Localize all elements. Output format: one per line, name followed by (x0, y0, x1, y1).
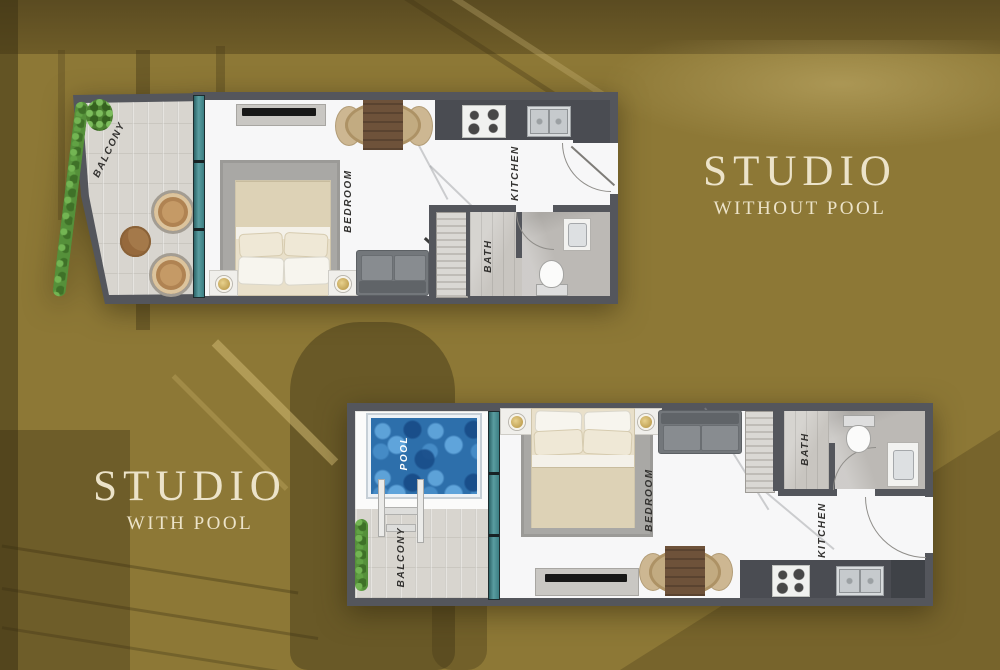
plan-title-line2: WITH POOL (65, 513, 315, 535)
balcony-chair-1 (151, 190, 195, 234)
bed-pillow (284, 256, 331, 286)
sofa-cushion (663, 425, 701, 451)
bed-pillow (582, 429, 632, 457)
kitchen-corner-counter (573, 100, 610, 143)
pool-label: POOL (399, 413, 411, 493)
nightstand-lamp (216, 276, 232, 292)
bed-sheet (532, 455, 634, 467)
vanity-basin (893, 450, 914, 480)
floorplan-studio-with-pool: POOL BALCONY (347, 403, 933, 606)
pool-ladder-rail (417, 479, 424, 543)
floorplan-studio-without-pool: BALCONY (72, 92, 618, 304)
background-sky-light (600, 40, 1000, 150)
balcony-table (120, 226, 151, 257)
nightstand-lamp (638, 414, 654, 430)
sofa-cushion (701, 425, 739, 451)
bed-blanket (236, 181, 330, 230)
balcony-chair-2 (149, 253, 193, 297)
bed-pillow (533, 429, 583, 457)
entry-opening (610, 143, 618, 194)
sink-basin (530, 109, 549, 134)
sofa-back (359, 281, 426, 293)
toilet (539, 260, 564, 288)
sofa-back (661, 413, 739, 424)
kitchen-sink (836, 566, 884, 596)
kitchen-sink (527, 106, 571, 137)
bath-label: BATH (800, 409, 812, 489)
glass-door-frame (489, 472, 499, 475)
bath-wall (553, 205, 610, 212)
kitchen-label: KITCHEN (510, 133, 522, 213)
plan-title-without-pool: STUDIO WITHOUT POOL (665, 150, 935, 220)
glass-door-frame (194, 160, 204, 163)
glass-door-frame (489, 534, 499, 537)
sofa-cushion (394, 255, 426, 281)
plan-title-line1: STUDIO (65, 465, 315, 508)
plan-title-line2: WITHOUT POOL (665, 198, 935, 220)
kitchen-corner-counter (891, 560, 925, 598)
bath-wall (429, 205, 516, 212)
potted-palm-plant (86, 99, 113, 131)
glass-door-frame (194, 228, 204, 231)
kitchen-label: KITCHEN (817, 490, 829, 570)
wardrobe (436, 212, 468, 298)
bed-blanket (532, 467, 634, 528)
sink-basin (860, 569, 881, 593)
bed-pillow (238, 232, 283, 258)
bedroom-label: BEDROOM (343, 161, 355, 241)
bed-pillow (283, 232, 328, 258)
tv (242, 108, 316, 116)
bath-wall (875, 489, 925, 496)
dining-table-runner (665, 546, 705, 596)
balcony-glass-door (488, 411, 500, 600)
sofa (356, 250, 429, 296)
pool-ladder-step (384, 507, 418, 515)
stove-cooktop (772, 565, 810, 597)
sink-basin (549, 109, 568, 134)
balcony-label: BALCONY (396, 517, 408, 597)
dining-table-runner (363, 100, 403, 150)
entry-opening (925, 497, 933, 553)
tv-console (535, 568, 639, 596)
shower (470, 212, 522, 296)
toilet (846, 425, 871, 453)
nightstand-lamp (335, 276, 351, 292)
stove-cooktop (462, 105, 506, 138)
vanity-basin (568, 223, 587, 247)
bathroom-vanity (563, 218, 591, 251)
plan-title-line1: STUDIO (665, 150, 935, 193)
bath-label: BATH (483, 216, 495, 296)
balcony-plant (355, 519, 368, 591)
double-bed (531, 408, 635, 528)
bath-wall (429, 205, 436, 296)
wardrobe (745, 411, 775, 493)
bath-wall (778, 411, 784, 489)
nightstand-lamp (509, 414, 525, 430)
bed-pillow (238, 256, 285, 286)
floorplan-poster: BALCONY (0, 0, 1000, 670)
sink-basin (839, 569, 860, 593)
balcony-glass-door (193, 95, 205, 298)
sofa (658, 410, 742, 454)
bedroom-label: BEDROOM (644, 460, 656, 540)
bathroom-vanity (887, 442, 919, 487)
plan-title-with-pool: STUDIO WITH POOL (65, 465, 315, 535)
tv (545, 574, 627, 582)
sofa-cushion (361, 255, 393, 281)
double-bed (235, 180, 331, 296)
